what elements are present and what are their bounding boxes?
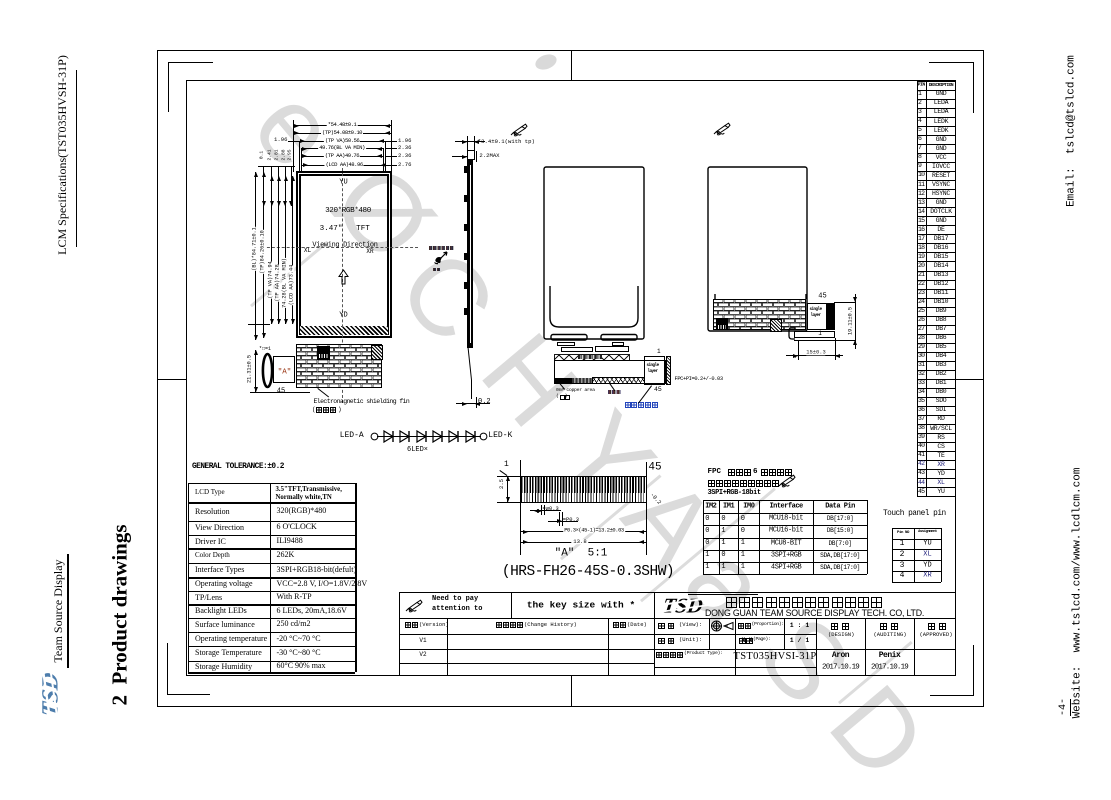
- svg-text:TSD: TSD: [662, 594, 704, 617]
